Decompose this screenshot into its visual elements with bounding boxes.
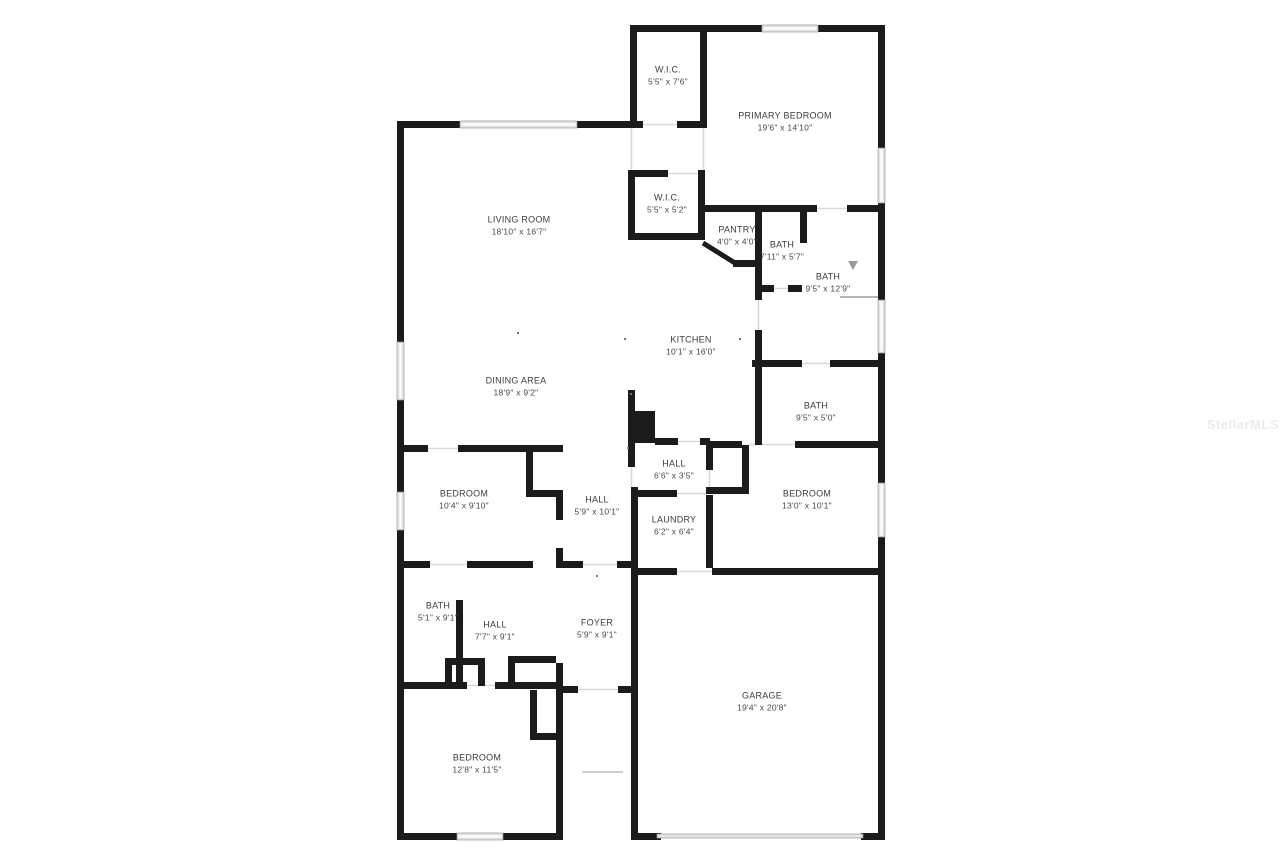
wall-segment [762, 285, 774, 292]
wall-segment [755, 360, 762, 445]
wall-segment [478, 658, 485, 686]
wall-segment [788, 285, 802, 292]
window-pane [462, 123, 576, 125]
wall-segment [456, 600, 463, 682]
wall-segment [458, 445, 563, 452]
wall-segment [847, 205, 885, 212]
wall-segment [628, 170, 635, 240]
wall-segment [733, 260, 762, 267]
window-pane [880, 485, 882, 536]
wall-segment [617, 561, 638, 568]
plan-dot [517, 332, 519, 334]
wall-segment [495, 682, 563, 689]
window-pane [880, 302, 882, 352]
utility-box [633, 411, 655, 443]
wall-segment [556, 490, 563, 520]
plan-dot [630, 393, 632, 395]
wall-segment [677, 121, 707, 128]
wall-segment [397, 121, 404, 840]
plan-dot [596, 575, 598, 577]
wall-segment [630, 25, 885, 32]
wall-segment [655, 438, 678, 445]
wall-segment [631, 490, 677, 497]
wall-segment [755, 330, 762, 360]
window-pane [399, 344, 401, 399]
wall-segment [397, 561, 430, 568]
window-pane [764, 27, 817, 29]
shower-head-icon [848, 261, 858, 270]
wall-segment [631, 568, 677, 575]
wall-segment [508, 656, 556, 663]
wall-segment [630, 121, 643, 128]
wall-segment [628, 233, 705, 240]
floor-plan-canvas: W.I.C.5'5" x 7'6"PRIMARY BEDROOM19'6" x … [0, 0, 1280, 856]
wall-segment [445, 658, 452, 686]
wall-segment [397, 682, 467, 689]
garage-door [657, 834, 863, 838]
wall-segment [508, 656, 515, 682]
wall-segment [631, 487, 638, 568]
wall-segment [618, 686, 631, 693]
wall-segment [861, 833, 885, 840]
wall-segment [706, 487, 749, 494]
wall-segment [563, 686, 578, 693]
pantry-diagonal-wall [703, 243, 735, 263]
wall-segment [700, 32, 707, 128]
wall-segment [706, 441, 713, 470]
wall-segment [706, 495, 713, 568]
wall-segment [630, 32, 637, 128]
wall-segment [556, 663, 563, 840]
window-pane [399, 494, 401, 529]
wall-segment [556, 561, 583, 568]
plan-dot [624, 338, 626, 340]
floor-plan-svg [0, 0, 1280, 856]
plan-dot [627, 447, 629, 449]
wall-segment [795, 441, 878, 448]
wall-segment [800, 205, 807, 243]
window-pane [459, 835, 502, 837]
wall-segment [712, 568, 885, 575]
wall-segment [467, 561, 533, 568]
wall-segment [526, 445, 533, 495]
wall-segment [878, 25, 885, 840]
wall-segment [698, 170, 705, 240]
window-pane [880, 150, 882, 202]
fixtures-group [517, 243, 878, 838]
wall-segment [830, 360, 885, 367]
wall-segment [530, 690, 537, 740]
plan-dot [739, 338, 741, 340]
watermark: StellarMLS [1207, 417, 1279, 432]
wall-segment [631, 568, 638, 840]
wall-segment [742, 445, 749, 490]
wall-segment [397, 445, 428, 452]
wall-segment [530, 733, 563, 740]
wall-segment [755, 205, 762, 267]
wall-segment [755, 267, 762, 300]
